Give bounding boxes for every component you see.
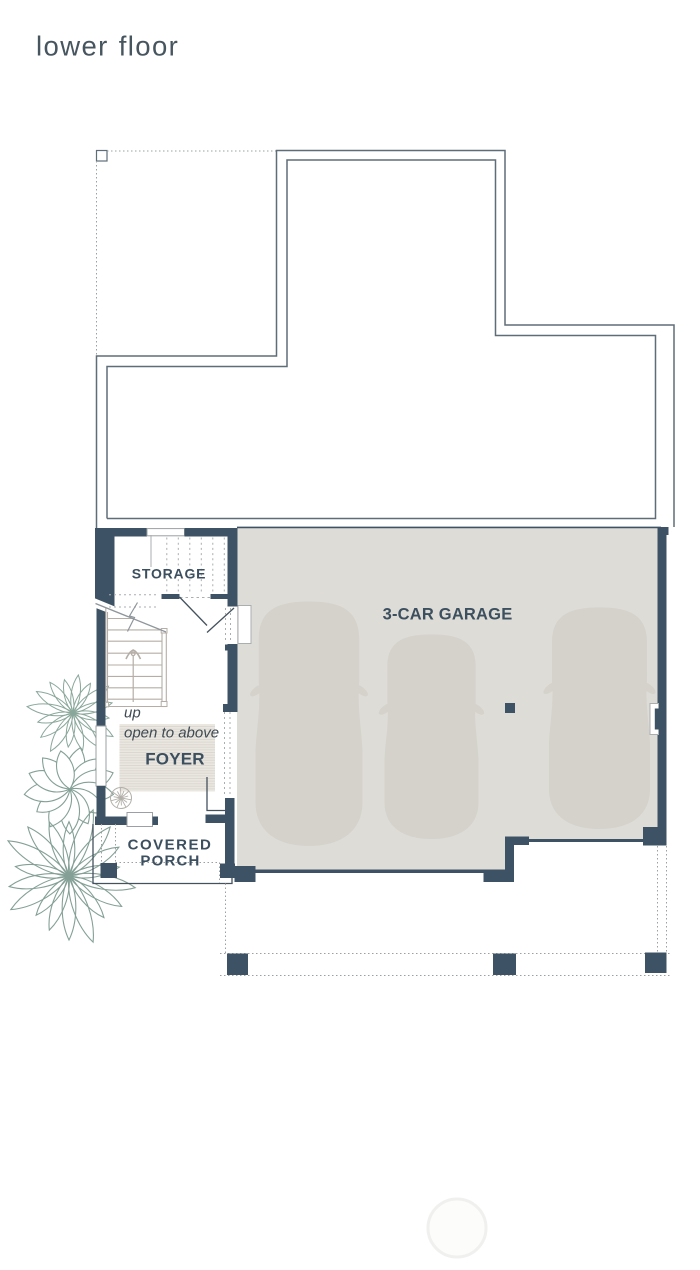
svg-text:lowerfloor: lowerfloor bbox=[36, 31, 179, 62]
svg-text:FOYER: FOYER bbox=[145, 749, 205, 768]
svg-text:up: up bbox=[124, 705, 141, 722]
svg-text:PORCH: PORCH bbox=[140, 852, 200, 869]
svg-text:3-CAR GARAGE: 3-CAR GARAGE bbox=[383, 606, 513, 624]
svg-text:COVERED: COVERED bbox=[128, 836, 213, 853]
svg-text:STORAGE: STORAGE bbox=[132, 565, 207, 581]
svg-text:open to above: open to above bbox=[124, 725, 219, 742]
